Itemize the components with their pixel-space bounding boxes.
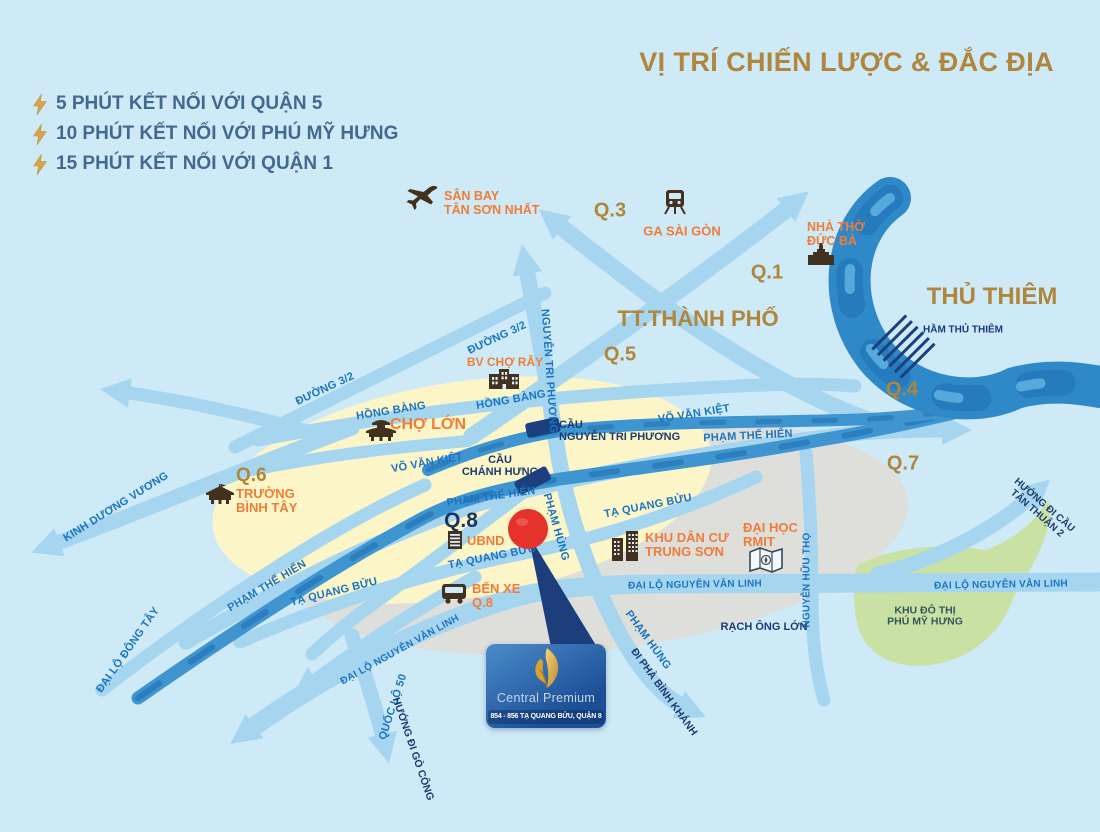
district-label-q5: Q.5 (604, 344, 636, 367)
poi-line: BÌNH TÂY (236, 501, 297, 515)
poi-binh-tay-block: Q.6 TRƯỜNG BÌNH TÂY (236, 466, 297, 515)
project-location-pin (506, 507, 550, 551)
district-label-city-center: TT.THÀNH PHỐ (617, 306, 778, 332)
waterway-label-rach-ong-lon: RẠCH ÔNG LỚN (721, 621, 808, 633)
poi-line: TRƯỜNG (236, 487, 297, 501)
district-label-q1: Q.1 (751, 262, 783, 285)
hospital-icon (488, 369, 520, 389)
residential-buildings-icon (610, 529, 640, 561)
bridge-label-chanh-hung: CẦU CHÁNH HƯNG (462, 455, 538, 479)
train-icon (662, 188, 688, 218)
school-icon (204, 484, 236, 506)
market-icon (362, 417, 400, 443)
road-label-nguyen-van-linh-center: ĐẠI LỘ NGUYỄN VĂN LINH (628, 578, 762, 591)
road-label-nguyen-huu-tho: NGUYỄN HỮU THỌ (802, 533, 813, 628)
bullet-text: 15 PHÚT KẾT NỐI VỚI QUẬN 1 (56, 153, 333, 175)
bridge-line: NGUYỄN TRI PHƯƠNG (559, 432, 680, 444)
district-label-thu-thiem: THỦ THIÊM (927, 283, 1058, 311)
bus-station-icon (441, 581, 467, 605)
poi-line: KHU DÂN CƯ (645, 531, 729, 545)
poi-line: SÂN BAY (444, 190, 539, 204)
poi-line: TÂN SƠN NHẤT (444, 204, 539, 218)
tunnel-label-ham-thu-thiem: HẦM THỦ THIÊM (923, 325, 1003, 336)
district-label-q4: Q.4 (886, 379, 918, 402)
poi-hospital-label: BV CHỢ RẪY (467, 355, 543, 369)
poi-airport-label: SÂN BAY TÂN SƠN NHẤT (444, 190, 539, 217)
poi-line: ĐẠI HỌC (743, 521, 798, 535)
location-map: VỊ TRÍ CHIẾN LƯỢC & ĐẮC ĐỊA 5 PHÚT KẾT N… (0, 0, 1100, 832)
bullet-text: 5 PHÚT KẾT NỐI VỚI QUẬN 5 (56, 93, 322, 115)
bridge-label-nguyen-tri-phuong: CẦU NGUYỄN TRI PHƯƠNG (559, 420, 680, 444)
lightning-bolt-icon (33, 124, 47, 145)
lightning-bolt-icon (33, 94, 47, 115)
map-icon (748, 546, 784, 574)
poi-phu-my-hung-label: KHU ĐÔ THỊ PHÚ MỸ HƯNG (887, 606, 963, 629)
poi-line: TRUNG SƠN (645, 545, 729, 559)
bullet-row: 5 PHÚT KẾT NỐI VỚI QUẬN 5 (33, 93, 398, 115)
poi-trung-son-label: KHU DÂN CƯ TRUNG SƠN (645, 531, 729, 559)
bridge-line: CHÁNH HƯNG (462, 467, 538, 479)
church-icon (806, 243, 836, 265)
airplane-icon (404, 184, 438, 210)
poi-line: NHÀ THỜ (807, 221, 865, 235)
poi-bus-station-label: BẾN XE Q.8 (472, 582, 520, 610)
bullet-text: 10 PHÚT KẾT NỐI VỚI PHÚ MỸ HƯNG (56, 123, 398, 145)
poi-rmit-label: ĐẠI HỌC RMIT (743, 521, 798, 549)
project-address: 854 - 856 TẠ QUANG BỬU, QUẬN 8 (488, 710, 604, 724)
connection-bullets: 5 PHÚT KẾT NỐI VỚI QUẬN 5 10 PHÚT KẾT NỐ… (33, 93, 398, 183)
project-name: Central Premium (486, 691, 606, 705)
poi-line: BẾN XE (472, 582, 520, 596)
road-label-nguyen-van-linh-east: ĐẠI LỘ NGUYỄN VĂN LINH (934, 578, 1068, 591)
bullet-row: 15 PHÚT KẾT NỐI VỚI QUẬN 1 (33, 153, 398, 175)
bullet-row: 10 PHÚT KẾT NỐI VỚI PHÚ MỸ HƯNG (33, 123, 398, 145)
poi-cho-lon-label: CHỢ LỚN (390, 416, 466, 434)
poi-train-station-label: GA SÀI GÒN (643, 224, 721, 239)
project-card: Central Premium 854 - 856 TẠ QUANG BỬU, … (486, 644, 606, 728)
district-label-q8: Q.8 (444, 509, 478, 533)
page-title: VỊ TRÍ CHIẾN LƯỢC & ĐẮC ĐỊA (639, 47, 1054, 78)
government-building-icon (447, 531, 463, 549)
district-label-q6: Q.6 (236, 466, 297, 487)
project-logo-leaf-icon (529, 646, 563, 690)
poi-line: PHÚ MỸ HƯNG (887, 617, 963, 628)
poi-ubnd-label: UBND (467, 533, 505, 548)
lightning-bolt-icon (33, 154, 47, 175)
district-label-q7: Q.7 (887, 453, 919, 476)
poi-line: Q.8 (472, 596, 520, 610)
district-label-q3: Q.3 (594, 200, 626, 223)
